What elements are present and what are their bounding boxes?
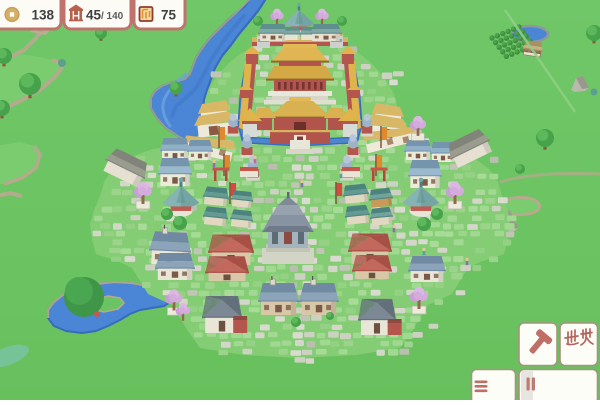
svg-text:45: 45 — [86, 8, 102, 23]
svg-text:138: 138 — [31, 8, 54, 23]
svg-text:75: 75 — [161, 8, 177, 23]
svg-text:/ 140: / 140 — [101, 11, 124, 22]
